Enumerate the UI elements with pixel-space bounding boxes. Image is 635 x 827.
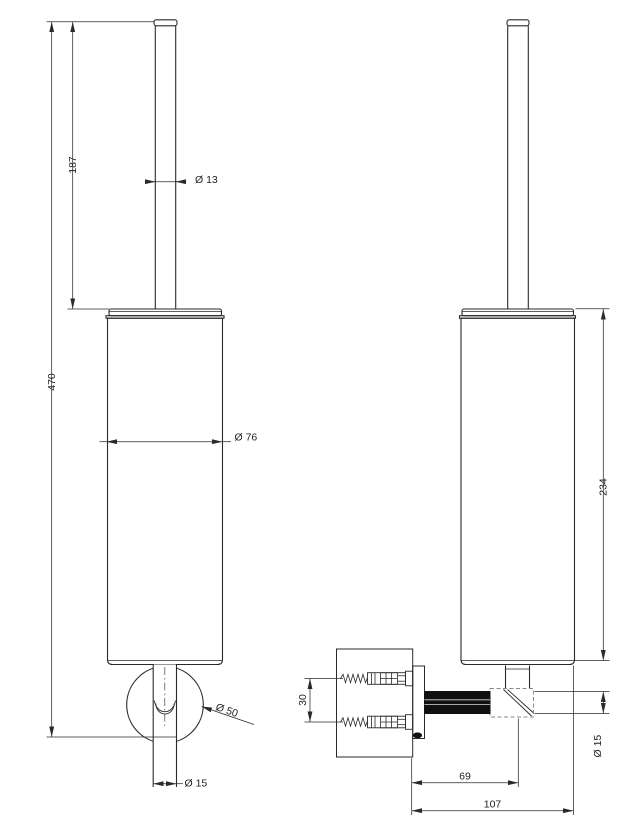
wall-section [337,649,413,757]
dimensions-side: 234 Ø 15 30 69 107 [297,309,609,815]
dim-label-tube-diameter: Ø 15 [185,778,208,790]
dim-label-rod-height: 187 [67,156,79,174]
drawing-svg: 470 187 Ø 13 Ø 76 Ø 50 Ø 15 234 [0,0,635,827]
screw-anchor-bottom [341,715,413,730]
dim-label-body-diameter: Ø 76 [235,432,258,444]
dim-label-wall-to-axis: 69 [459,771,471,783]
dimensions-front: 470 187 Ø 13 Ø 76 Ø 50 Ø 15 [46,22,258,790]
screw-anchor-top [341,671,413,686]
brush-rod-side [507,20,529,309]
dim-label-screw-spacing: 30 [297,694,309,706]
mounting-arm [425,692,491,714]
dim-label-flange-diameter: Ø 50 [214,701,240,720]
screw-anchors [341,671,413,729]
dim-label-body-height: 234 [598,478,610,496]
container-lid-side [460,309,576,318]
dim-label-total-height: 470 [46,373,58,391]
drawing-root: 470 187 Ø 13 Ø 76 Ø 50 Ø 15 234 [46,20,610,815]
front-view [106,20,224,787]
dim-label-rod-diameter: Ø 13 [195,174,218,186]
bottom-tube-front [153,665,176,788]
holder-bracket-hidden [490,689,534,718]
dim-label-arm-diameter: Ø 15 [592,735,604,758]
mounting-plate [413,666,425,739]
container-lid-front [106,309,224,318]
side-view [337,20,576,757]
brush-rod-front [154,20,177,309]
container-body-front [108,318,223,664]
technical-drawing-canvas: 470 187 Ø 13 Ø 76 Ø 50 Ø 15 234 [0,0,635,827]
dim-label-wall-to-front: 107 [484,799,502,811]
container-body-side [461,318,575,664]
holder-neck [506,666,530,690]
plate-screw-dot [413,732,422,738]
